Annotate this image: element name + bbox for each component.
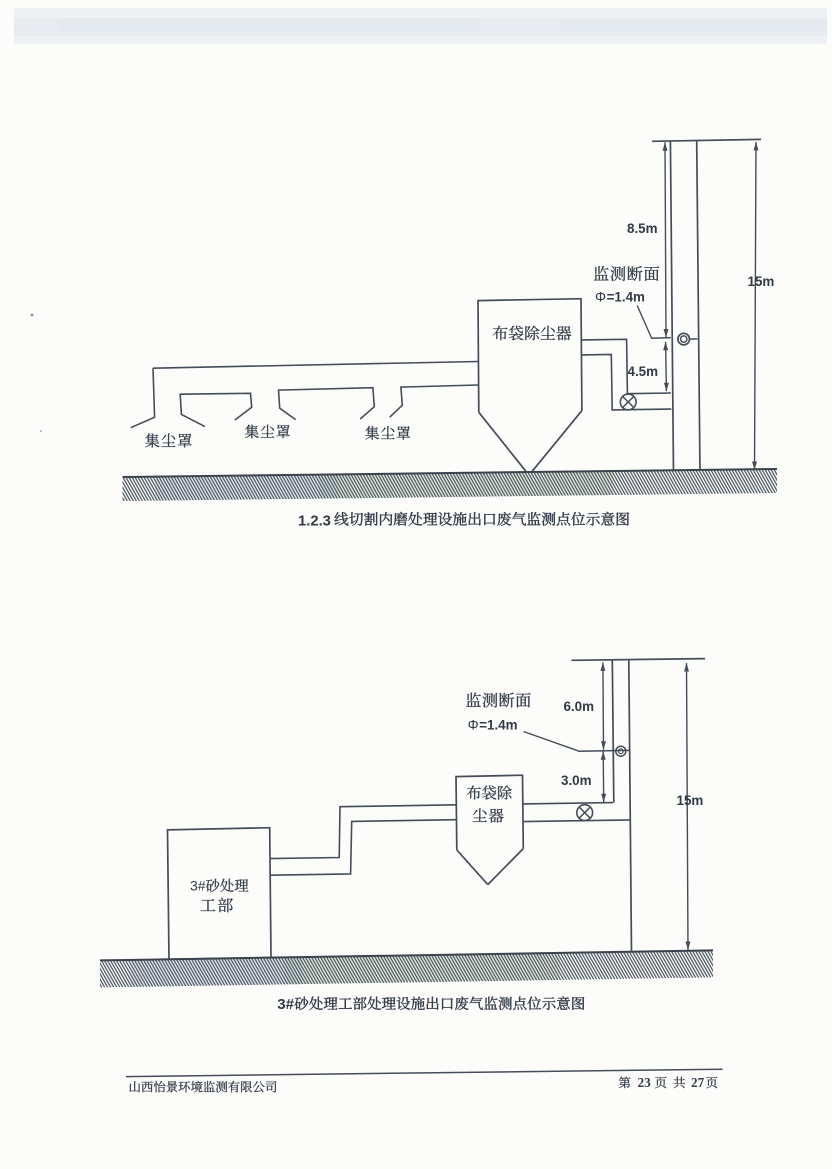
svg-text:1.2.3: 1.2.3: [298, 514, 331, 530]
svg-text:15m: 15m: [677, 793, 704, 808]
svg-text:=1.4m: =1.4m: [607, 290, 645, 305]
svg-text:8.5m: 8.5m: [627, 221, 658, 236]
svg-text:3#: 3#: [277, 996, 294, 1013]
svg-text:23: 23: [638, 1075, 652, 1090]
svg-text:3.0m: 3.0m: [561, 773, 592, 788]
svg-text:3#: 3#: [190, 878, 206, 894]
svg-text:Φ: Φ: [468, 718, 479, 733]
svg-text:4.5m: 4.5m: [628, 364, 659, 379]
svg-text:=1.4m: =1.4m: [479, 718, 517, 733]
svg-text:6.0m: 6.0m: [564, 699, 595, 714]
svg-text:Φ: Φ: [595, 290, 606, 305]
svg-text:15m: 15m: [748, 274, 775, 289]
svg-text:27: 27: [691, 1075, 705, 1090]
